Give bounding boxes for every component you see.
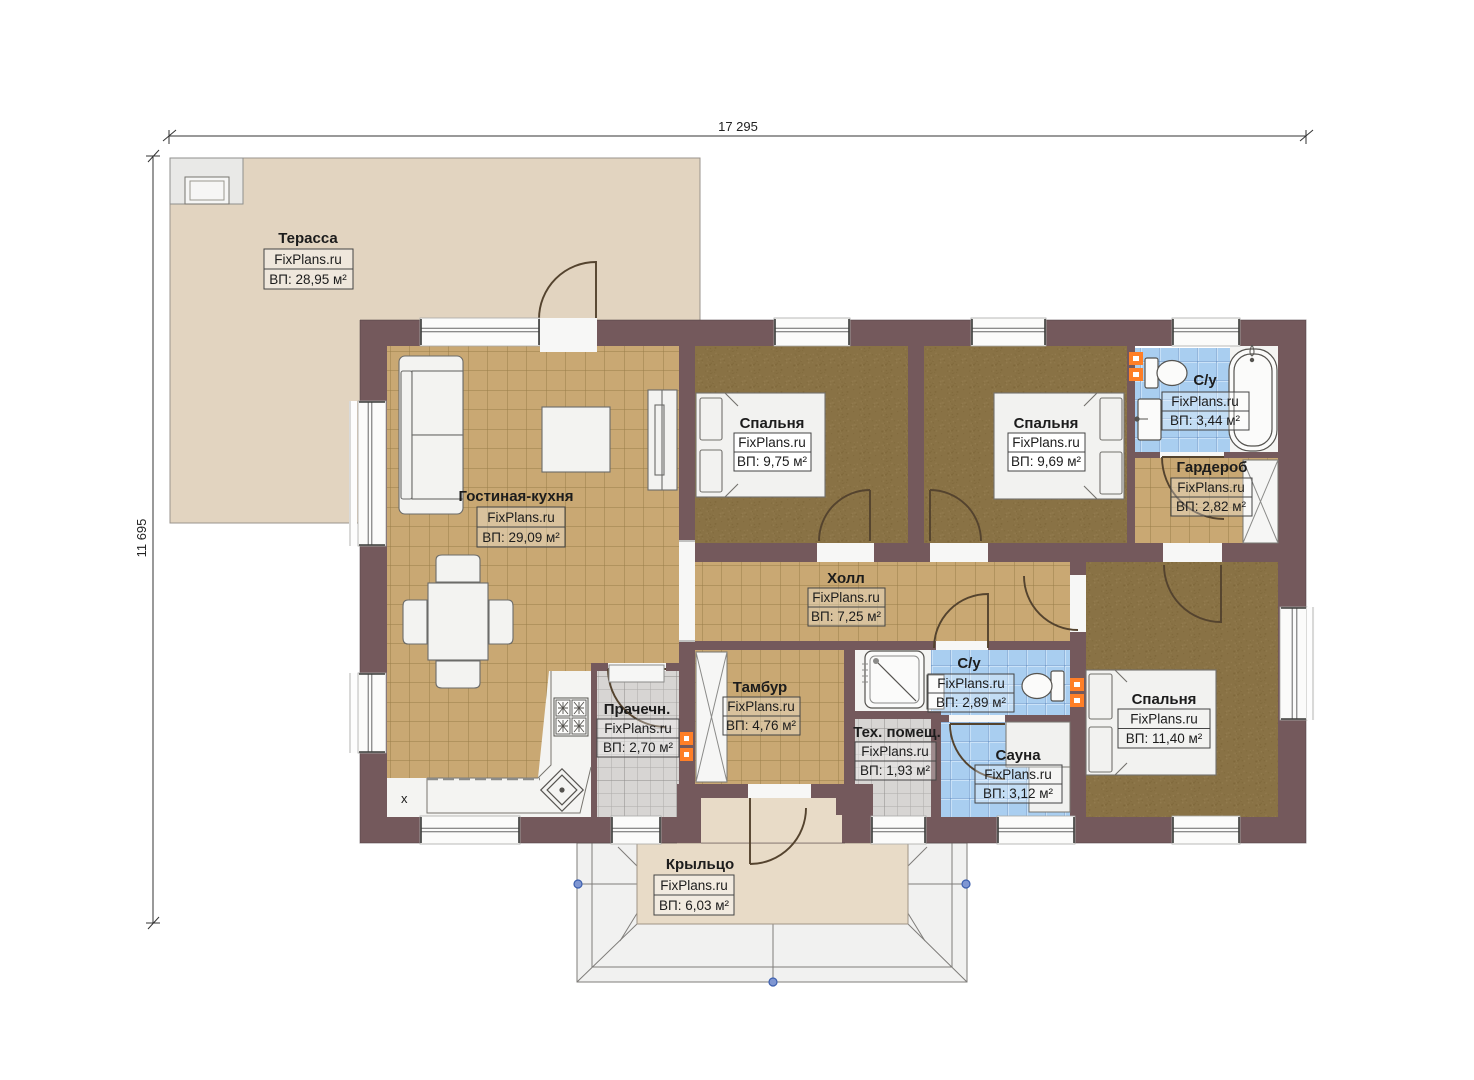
svg-text:Тамбур: Тамбур [733,679,787,696]
svg-text:ВП: 11,40 м²: ВП: 11,40 м² [1126,731,1203,746]
svg-text:FixPlans.ru: FixPlans.ru [727,699,795,714]
svg-text:Гостиная-кухня: Гостиная-кухня [459,488,574,505]
svg-text:FixPlans.ru: FixPlans.ru [1171,394,1239,409]
svg-text:FixPlans.ru: FixPlans.ru [937,676,1005,691]
svg-text:Тех. помещ.: Тех. помещ. [853,724,941,741]
svg-text:ВП: 3,44 м²: ВП: 3,44 м² [1170,413,1241,428]
svg-text:ВП: 4,76 м²: ВП: 4,76 м² [726,718,797,733]
svg-text:FixPlans.ru: FixPlans.ru [812,590,880,605]
svg-text:11 695: 11 695 [134,519,149,558]
svg-text:Спальня: Спальня [1132,691,1197,708]
svg-text:Прачечн.: Прачечн. [604,701,671,718]
svg-text:FixPlans.ru: FixPlans.ru [487,510,555,525]
svg-text:x: x [401,791,408,806]
svg-text:ВП: 2,89 м²: ВП: 2,89 м² [936,695,1007,710]
svg-text:ВП: 29,09 м²: ВП: 29,09 м² [482,530,560,545]
svg-text:ВП: 2,82 м²: ВП: 2,82 м² [1176,499,1247,514]
svg-text:FixPlans.ru: FixPlans.ru [861,744,929,759]
svg-text:17 295: 17 295 [718,119,758,134]
svg-text:Гардероб: Гардероб [1177,459,1248,476]
svg-text:С/у: С/у [957,655,981,672]
svg-text:ВП: 2,70 м²: ВП: 2,70 м² [603,740,674,755]
svg-text:Крыльцо: Крыльцо [666,856,734,873]
svg-text:Холл: Холл [827,570,865,587]
svg-text:Терасса: Терасса [278,230,338,247]
svg-text:FixPlans.ru: FixPlans.ru [1130,712,1198,727]
svg-text:ВП: 9,75 м²: ВП: 9,75 м² [737,454,808,469]
svg-text:ВП: 3,12 м²: ВП: 3,12 м² [983,786,1054,801]
svg-text:FixPlans.ru: FixPlans.ru [984,767,1052,782]
svg-text:FixPlans.ru: FixPlans.ru [1012,435,1080,450]
svg-text:FixPlans.ru: FixPlans.ru [604,721,672,736]
svg-text:С/у: С/у [1193,372,1217,389]
svg-text:ВП: 1,93 м²: ВП: 1,93 м² [860,763,931,778]
svg-text:Сауна: Сауна [995,747,1041,764]
svg-text:ВП: 9,69 м²: ВП: 9,69 м² [1011,454,1082,469]
svg-text:FixPlans.ru: FixPlans.ru [1177,480,1245,495]
svg-text:FixPlans.ru: FixPlans.ru [738,435,806,450]
svg-text:Спальня: Спальня [1014,415,1079,432]
svg-text:Спальня: Спальня [740,415,805,432]
svg-text:FixPlans.ru: FixPlans.ru [660,878,728,893]
svg-text:ВП: 7,25 м²: ВП: 7,25 м² [811,609,882,624]
svg-text:FixPlans.ru: FixPlans.ru [274,252,342,267]
svg-text:ВП: 6,03 м²: ВП: 6,03 м² [659,898,730,913]
svg-text:ВП: 28,95 м²: ВП: 28,95 м² [269,272,347,287]
